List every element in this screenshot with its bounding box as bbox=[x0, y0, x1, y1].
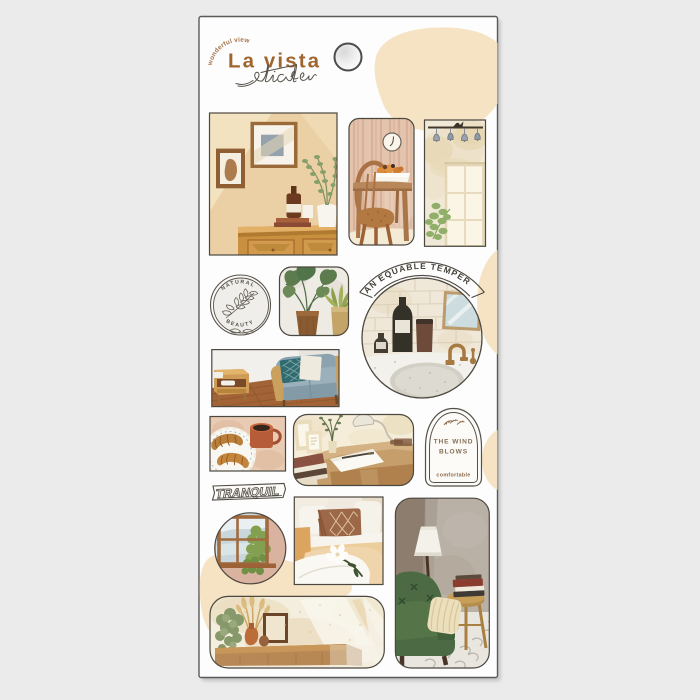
svg-text:TRANQUIL: TRANQUIL bbox=[215, 484, 281, 501]
svg-text:BLOWS: BLOWS bbox=[439, 449, 468, 456]
svg-text:comfortable: comfortable bbox=[436, 473, 470, 479]
svg-text:THE WIND: THE WIND bbox=[434, 439, 474, 446]
